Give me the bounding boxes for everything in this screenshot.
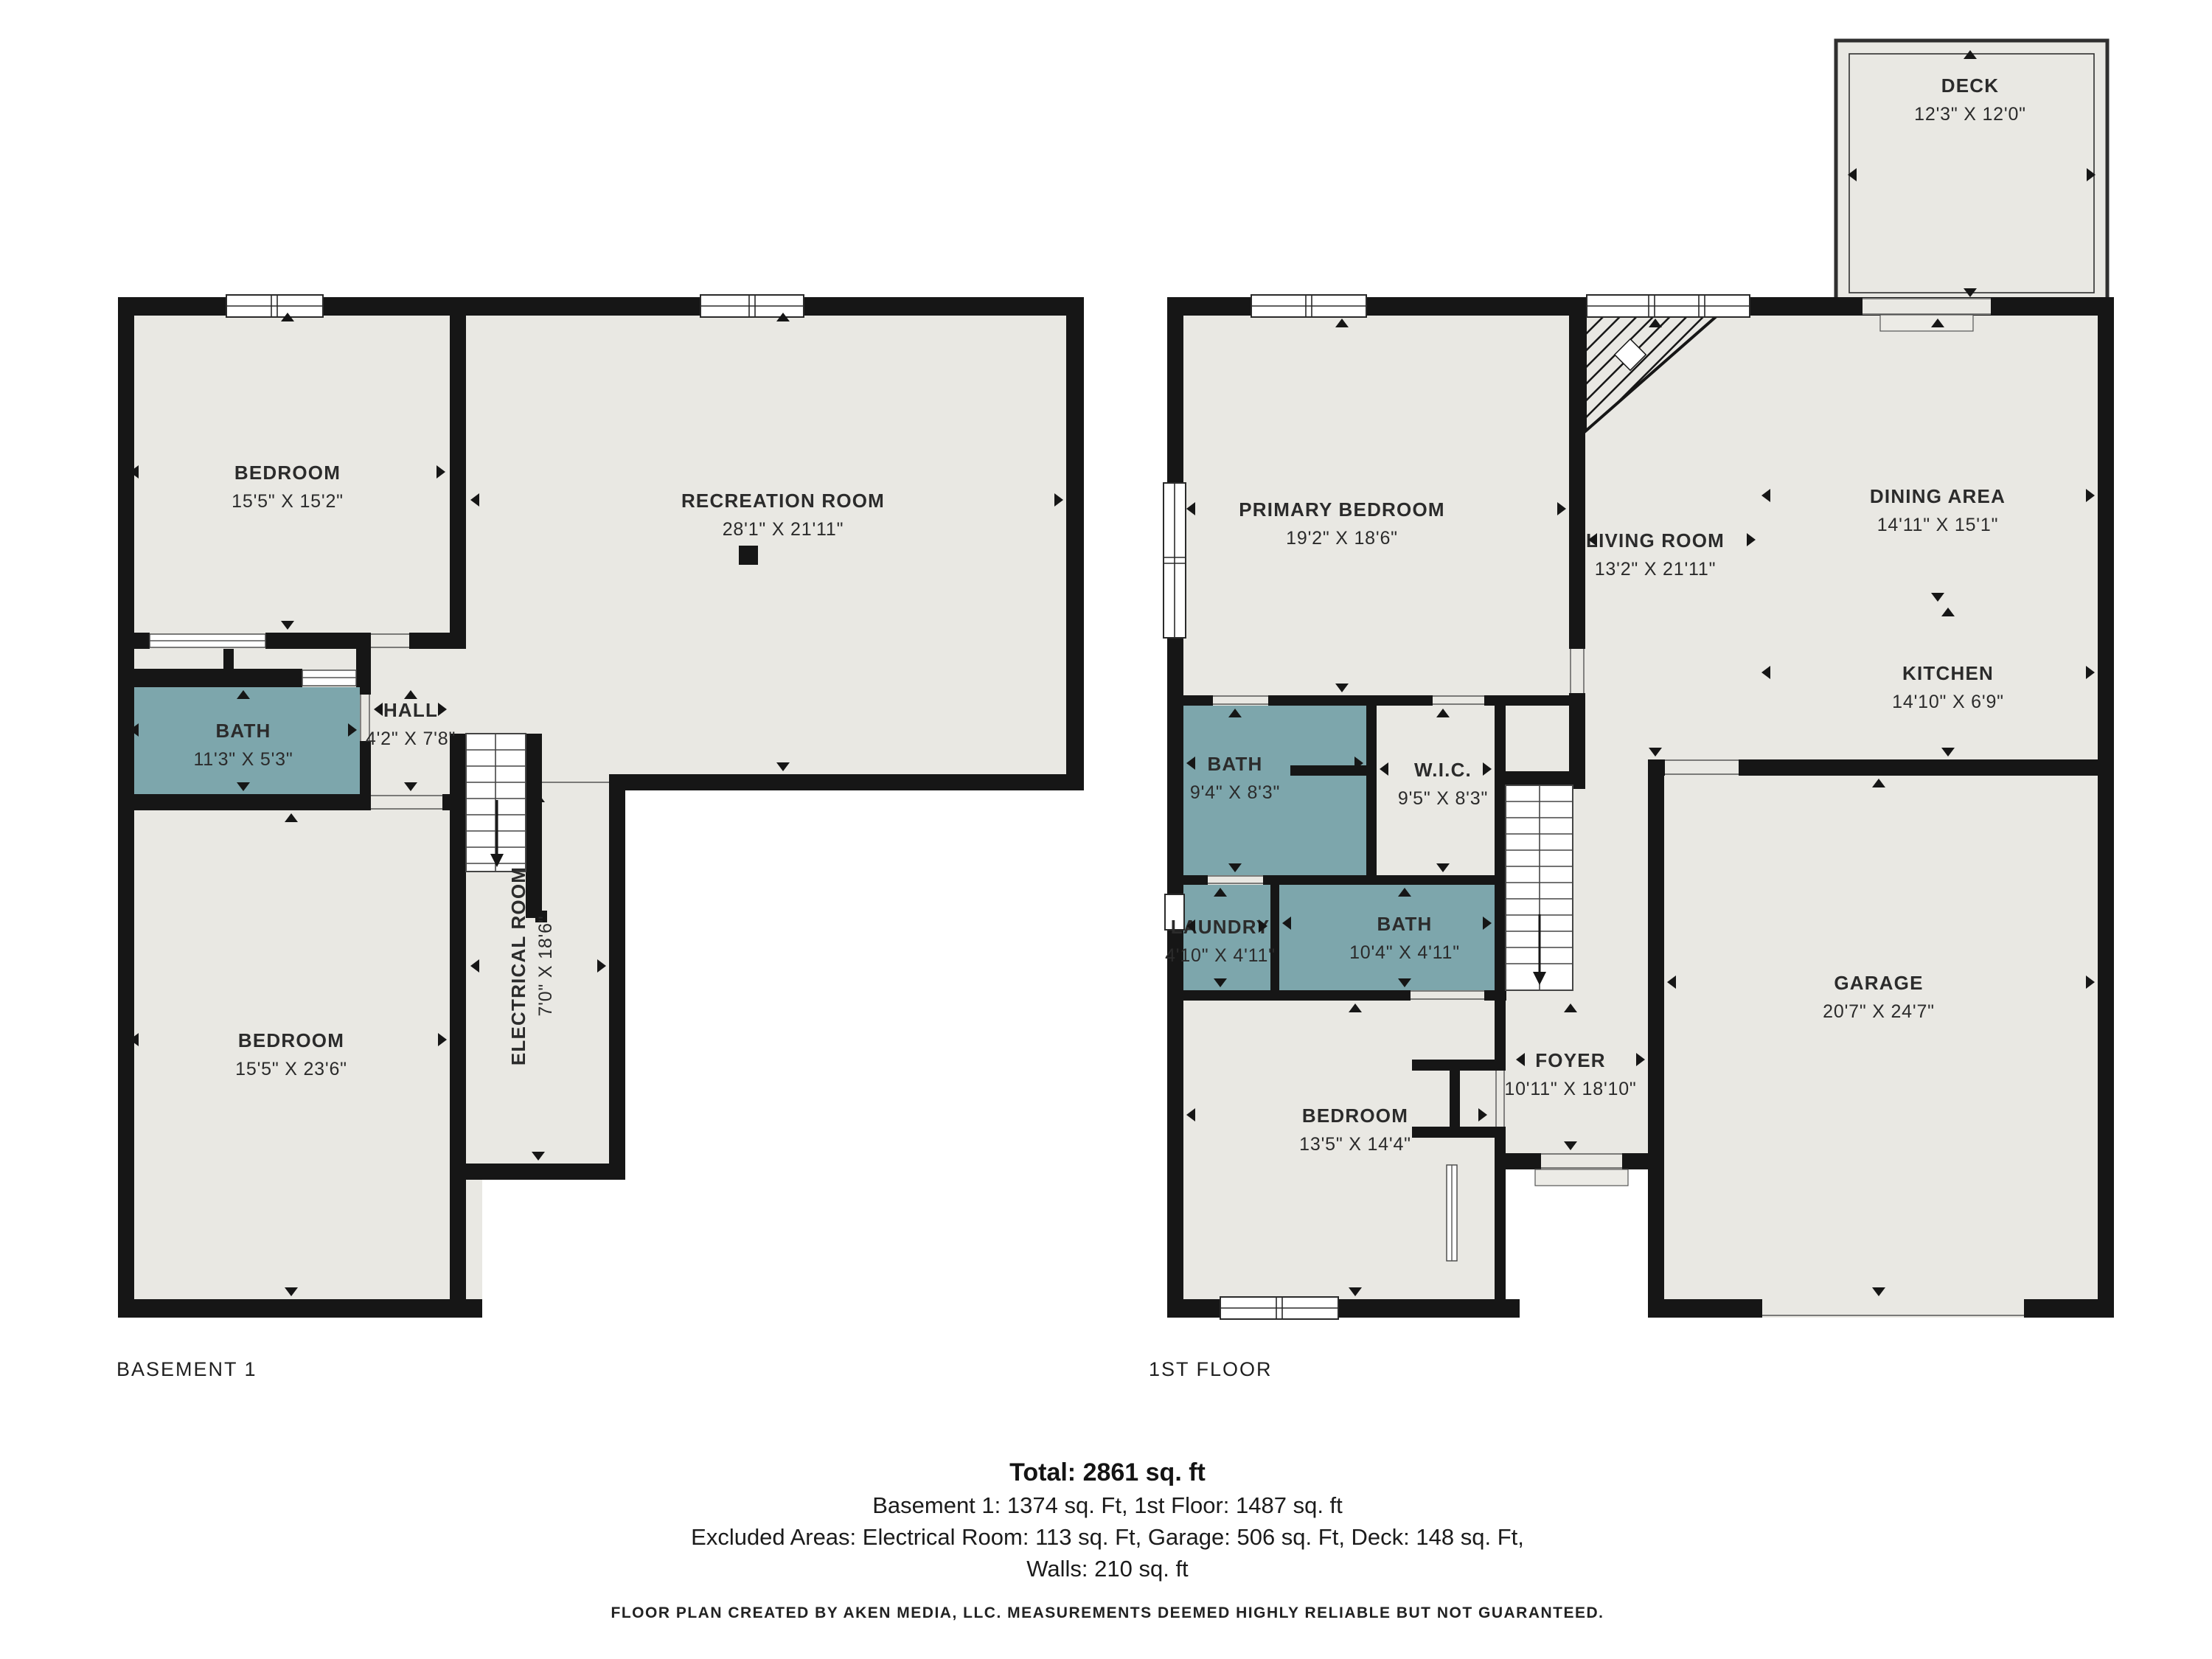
summary-walls: Walls: 210 sq. ft: [1026, 1556, 1189, 1582]
floor-plan-svg: BEDROOM15'5" X 15'2"RECREATION ROOM28'1"…: [0, 0, 2212, 1659]
room-label-living-room: LIVING ROOM: [1586, 529, 1725, 552]
room-dims-recreation-room: 28'1" X 21'11": [723, 519, 844, 540]
room-label-laundry: LAUNDRY: [1171, 916, 1270, 938]
summary-total: Total: 2861 sq. ft: [1009, 1458, 1206, 1486]
staircase-first-floor: [1506, 785, 1573, 990]
basement-floor-plan: [118, 295, 1084, 1318]
room-label-foyer: FOYER: [1535, 1049, 1606, 1071]
room-label-bath: BATH: [1207, 753, 1262, 775]
room-dims-bedroom: 15'5" X 15'2": [232, 491, 344, 512]
deck-step: [1880, 315, 1973, 331]
first-floor-title: 1ST FLOOR: [1149, 1358, 1273, 1380]
room-dims-electrical-room: 7'0" X 18'6": [535, 916, 556, 1017]
room-label-w-i-c-: W.I.C.: [1414, 759, 1472, 781]
bath2-floor: [1279, 885, 1495, 990]
room-dims-bath: 11'3" X 5'3": [193, 749, 293, 770]
summary-floors: Basement 1: 1374 sq. Ft, 1st Floor: 1487…: [872, 1492, 1343, 1518]
basement-title: BASEMENT 1: [116, 1358, 257, 1380]
room-label-primary-bedroom: PRIMARY BEDROOM: [1239, 498, 1444, 521]
room-dims-bedroom: 13'5" X 14'4": [1299, 1134, 1411, 1155]
room-label-bedroom: BEDROOM: [234, 462, 341, 484]
room-label-bedroom: BEDROOM: [1302, 1105, 1408, 1127]
room-label-bedroom: BEDROOM: [238, 1029, 344, 1051]
room-label-recreation-room: RECREATION ROOM: [681, 490, 885, 512]
room-label-bath: BATH: [215, 720, 271, 742]
room-dims-hall: 4'2" X 7'8": [366, 728, 456, 749]
room-dims-bedroom: 15'5" X 23'6": [235, 1059, 347, 1079]
room-label-hall: HALL: [383, 699, 438, 721]
footer-disclaimer: FLOOR PLAN CREATED BY AKEN MEDIA, LLC. M…: [611, 1604, 1604, 1621]
front-door-threshold: [1535, 1169, 1628, 1186]
room-dims-bath: 9'4" X 8'3": [1190, 782, 1280, 803]
room-label-deck: DECK: [1941, 74, 1999, 97]
room-dims-kitchen: 14'10" X 6'9": [1892, 692, 2004, 712]
room-dims-deck: 12'3" X 12'0": [1914, 104, 2026, 125]
room-dims-dining-area: 14'11" X 15'1": [1877, 515, 1999, 535]
staircase-basement: [466, 734, 526, 872]
summary-excluded: Excluded Areas: Electrical Room: 113 sq.…: [691, 1524, 1524, 1550]
room-dims-bath: 10'4" X 4'11": [1349, 942, 1460, 963]
room-dims-foyer: 10'11" X 18'10": [1504, 1079, 1636, 1099]
room-label-electrical-room: ELECTRICAL ROOM: [507, 866, 529, 1065]
room-dims-garage: 20'7" X 24'7": [1823, 1001, 1935, 1022]
support-post: [739, 546, 758, 565]
room-label-garage: GARAGE: [1834, 972, 1923, 994]
room-dims-primary-bedroom: 19'2" X 18'6": [1286, 528, 1398, 549]
room-dims-laundry: 4'10" X 4'11": [1165, 945, 1276, 966]
room-dims-w-i-c-: 9'5" X 8'3": [1398, 788, 1488, 809]
room-label-dining-area: DINING AREA: [1870, 485, 2006, 507]
room-dims-living-room: 13'2" X 21'11": [1595, 559, 1717, 580]
room-label-bath: BATH: [1377, 913, 1432, 935]
area-summary: Total: 2861 sq. ft Basement 1: 1374 sq. …: [691, 1458, 1524, 1582]
floor-plan-page: BEDROOM15'5" X 15'2"RECREATION ROOM28'1"…: [0, 0, 2212, 1659]
room-label-kitchen: KITCHEN: [1902, 662, 1994, 684]
